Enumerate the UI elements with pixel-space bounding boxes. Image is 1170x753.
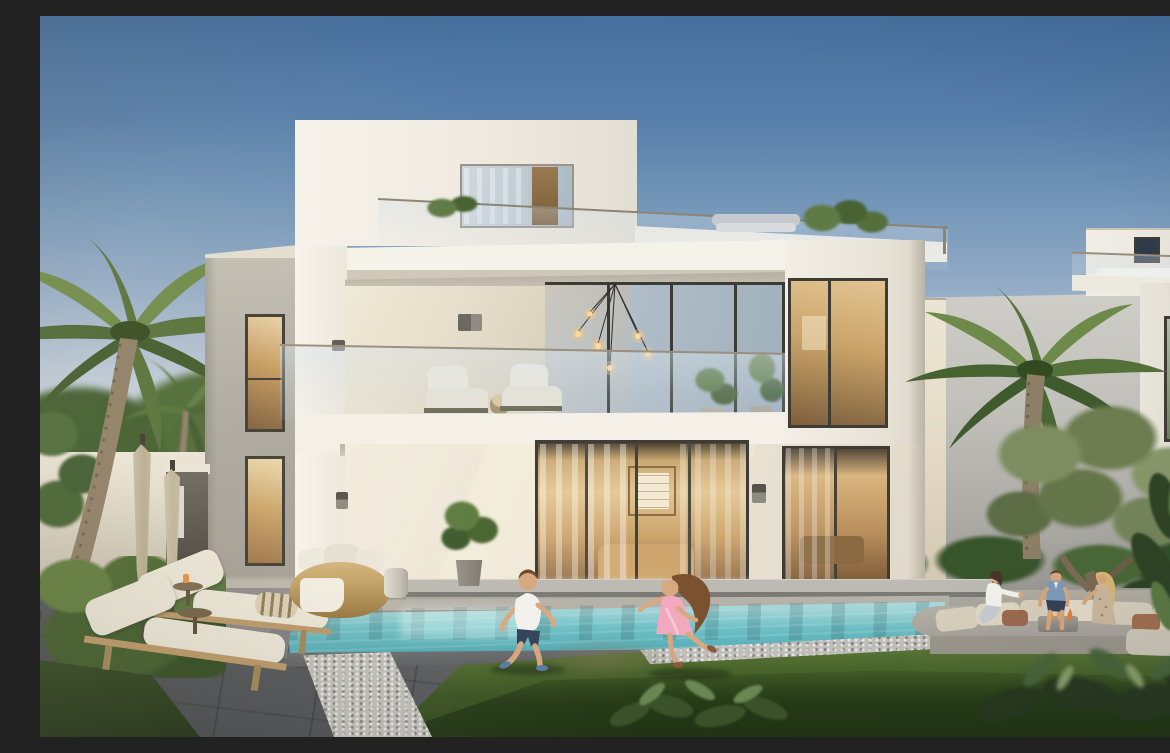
lounger-leg [298, 630, 306, 654]
seated-woman-blonde [1084, 572, 1116, 625]
roof-railing-post [943, 226, 946, 254]
living-room-curtain-right [680, 444, 746, 586]
roof-sofa-seat [716, 223, 796, 232]
umbrella-finial [140, 434, 145, 446]
side-table-leg [193, 617, 197, 634]
wing-window-upper-mullion [246, 378, 284, 380]
balcony-wall-light [458, 314, 482, 331]
wall-sconce-left [336, 492, 348, 509]
boy-sneaker [536, 665, 548, 671]
side-table-upper [173, 582, 203, 606]
window-2f-right [788, 278, 888, 428]
umbrella-finial [170, 460, 175, 471]
window-2f-art [802, 316, 826, 350]
lounger-leg [102, 645, 112, 670]
seated-woman-dark-hair [979, 571, 1024, 624]
roof-plant-left [418, 190, 484, 224]
wing-window-upper [245, 314, 285, 432]
seated-adults [968, 567, 1143, 639]
side-table-leg [186, 590, 190, 606]
drink-glass [183, 574, 189, 583]
foreground-plants-center [600, 664, 800, 737]
wicker-daybed [290, 544, 390, 632]
girl-head [662, 580, 679, 597]
daybed-throw [300, 578, 344, 612]
seated-man [1040, 571, 1068, 629]
dining-curtain [786, 448, 834, 584]
window-2f-right-mullion [828, 280, 831, 426]
tropical-leaves-right-edge [1125, 456, 1170, 656]
potted-shrub-leaves [432, 490, 506, 560]
wing-window-lower [245, 456, 285, 566]
living-room-curtain-left [540, 444, 628, 586]
wall-sconce-right [752, 484, 766, 503]
side-table-lower [178, 608, 212, 634]
roof-sofa [712, 214, 800, 236]
boy-shirt [515, 593, 541, 631]
stone-stool [384, 568, 408, 598]
lounger-leg [251, 664, 262, 691]
potted-shrub-pot [454, 560, 484, 586]
villa-rendering [40, 16, 1170, 737]
slider-mullion [635, 442, 638, 588]
